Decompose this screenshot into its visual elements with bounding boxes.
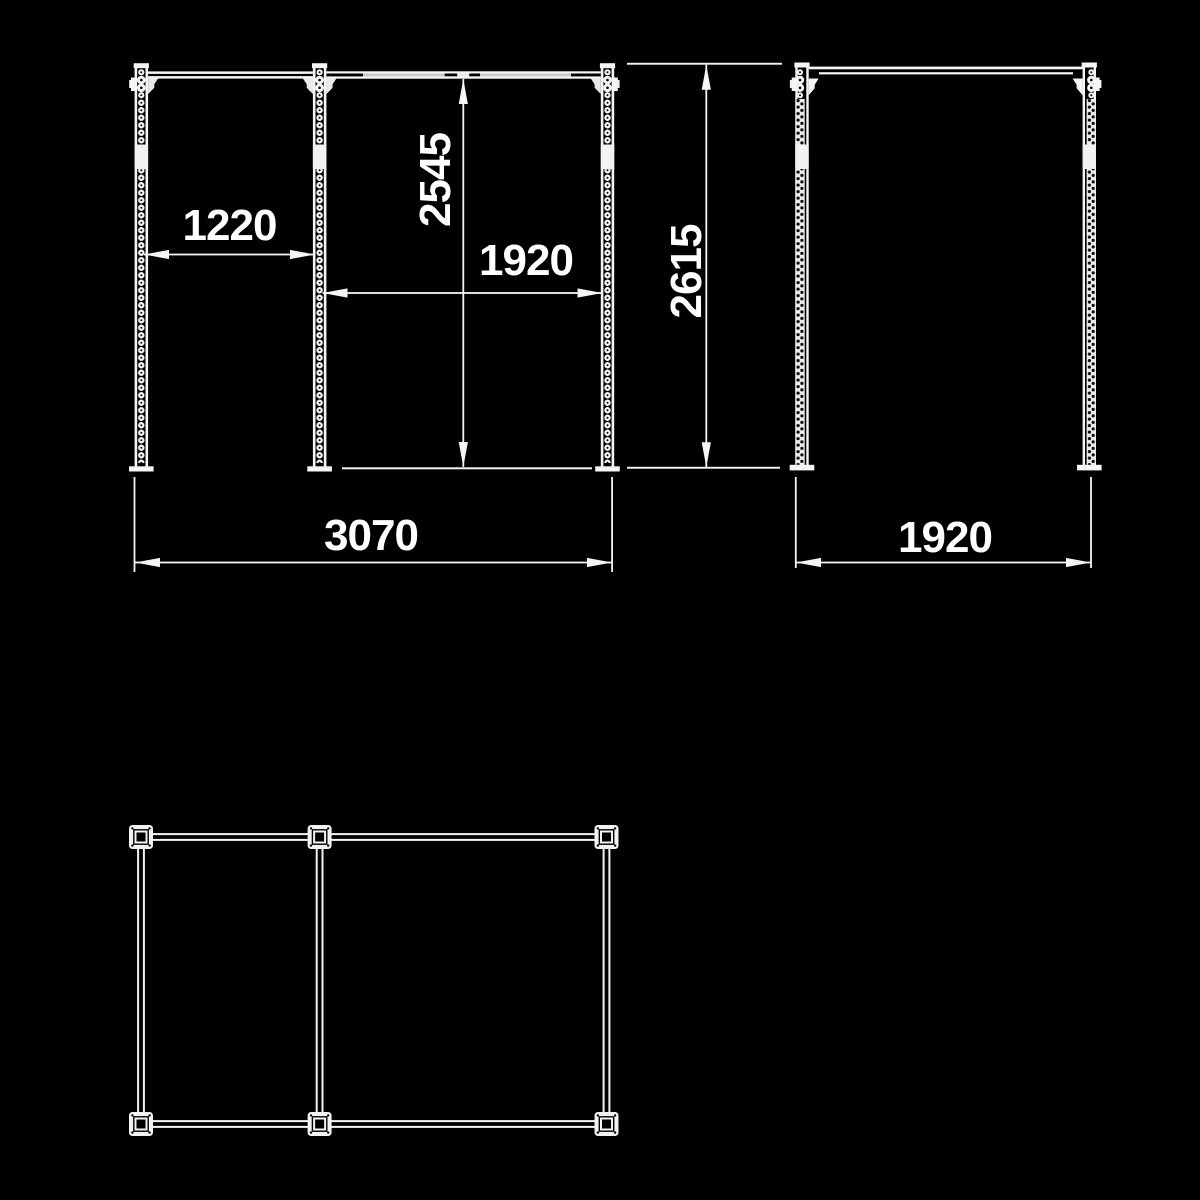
svg-text:2615: 2615 — [662, 224, 711, 318]
svg-text:2545: 2545 — [411, 133, 460, 227]
svg-text:3070: 3070 — [324, 511, 418, 560]
svg-text:1920: 1920 — [898, 513, 992, 562]
svg-text:1920: 1920 — [479, 236, 573, 285]
svg-text:1220: 1220 — [183, 201, 277, 250]
